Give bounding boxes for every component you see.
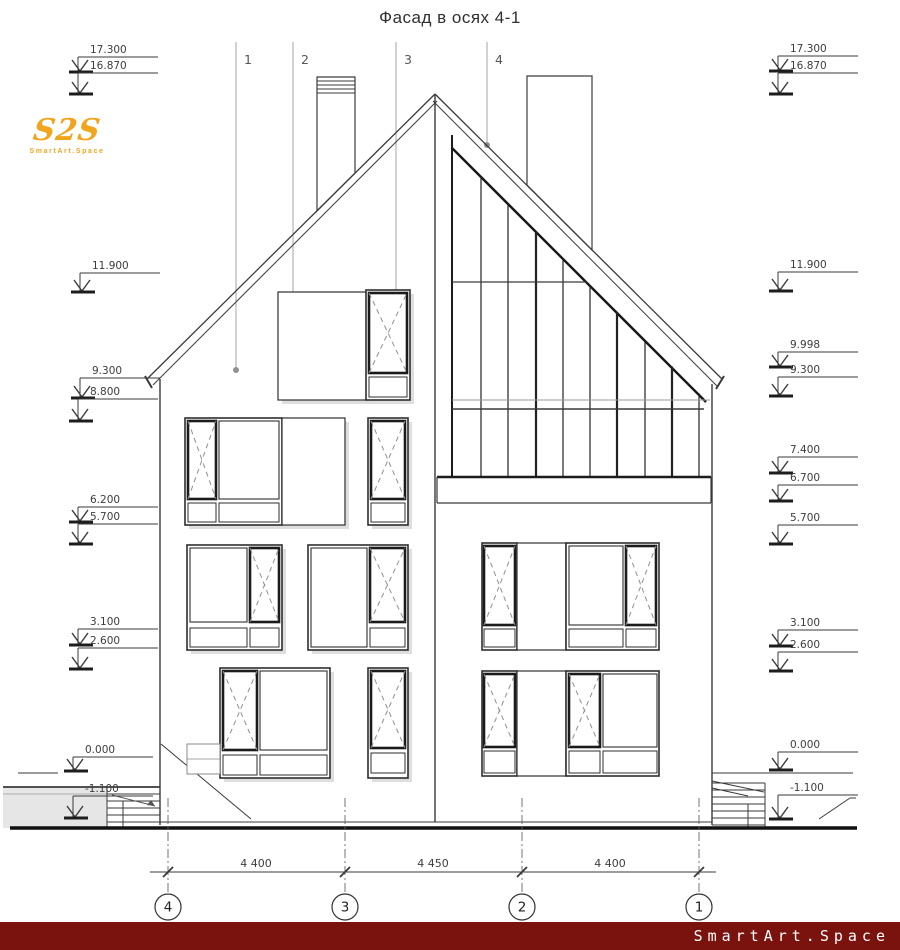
line: [780, 489, 788, 500]
line: [80, 532, 88, 543]
line: [80, 82, 88, 93]
line: [72, 409, 80, 420]
line: [75, 759, 83, 770]
level-value: 5.700: [790, 512, 820, 524]
axis-circles: 4321: [155, 894, 712, 920]
line: [72, 510, 80, 521]
spandrel-panel: [369, 377, 407, 397]
line: [80, 657, 88, 668]
level-value: 6.200: [90, 494, 120, 506]
facade-windows: [185, 290, 659, 782]
level-value: -1.100: [85, 783, 119, 795]
line: [72, 532, 80, 543]
footer-bar: SmartArt.Space: [0, 922, 900, 950]
line: [772, 82, 780, 93]
level-value: 9.300: [790, 364, 820, 376]
spandrel-panel: [260, 755, 327, 775]
attic-panel: [278, 292, 372, 404]
floor2-blank-panel: [282, 418, 349, 529]
line: [72, 82, 80, 93]
chimney-large: [527, 76, 592, 250]
floor2-window-1: [185, 418, 286, 529]
fixed-pane: [190, 548, 247, 622]
dimension-value: 4 450: [417, 857, 449, 870]
right-gf-window-2: [566, 671, 659, 776]
line: [780, 59, 788, 70]
chimneys: [317, 76, 592, 250]
level-value: 0.000: [85, 744, 115, 756]
line: [772, 461, 780, 472]
line: [80, 510, 88, 521]
level-value: 11.900: [790, 259, 827, 271]
leader-dot: [233, 367, 239, 373]
fixed-pane: [569, 546, 623, 625]
fixed-pane: [603, 674, 657, 747]
level-value: 9.998: [790, 339, 820, 351]
level-value: 3.100: [790, 617, 820, 629]
line: [780, 461, 788, 472]
line: [74, 386, 82, 397]
axis-number: 2: [518, 900, 527, 916]
level-value: 2.600: [90, 635, 120, 647]
spandrel-panel: [371, 503, 405, 522]
attic-window: [366, 290, 414, 404]
dimension-line: 4 4004 4504 400: [150, 798, 716, 893]
level-value: 5.700: [90, 511, 120, 523]
line: [780, 279, 788, 290]
spandrel-panel: [569, 629, 623, 647]
leader-label: 2: [301, 52, 309, 67]
leader-label: 1: [244, 52, 252, 67]
level-value: 17.300: [90, 44, 127, 56]
level-value: 16.870: [90, 60, 127, 72]
fixed-pane: [260, 671, 327, 750]
line: [72, 60, 80, 71]
line: [80, 633, 88, 644]
level-value: 0.000: [790, 739, 820, 751]
spandrel-panel: [484, 751, 515, 773]
window-frame: [517, 543, 566, 650]
leader-label: 3: [404, 52, 412, 67]
line: [780, 532, 788, 543]
floor1-window-2: [308, 545, 412, 654]
line: [780, 384, 788, 395]
facade-elevation-drawing: 123417.30016.87011.9009.3008.8006.2005.7…: [0, 0, 900, 950]
spandrel-panel: [188, 503, 216, 522]
spandrel-panel: [371, 753, 405, 773]
dimension-value: 4 400: [594, 857, 626, 870]
dimension-value: 4 400: [240, 857, 272, 870]
level-value: 8.800: [90, 386, 120, 398]
line: [780, 82, 788, 93]
line: [82, 280, 90, 291]
spandrel-panel: [484, 629, 515, 647]
levels-left: 17.30016.87011.9009.3008.8006.2005.7003.…: [64, 44, 160, 818]
axis-number: 3: [341, 900, 350, 916]
line: [772, 384, 780, 395]
right-f1-window-1: [482, 543, 517, 650]
line: [80, 409, 88, 420]
spandrel-panel: [190, 628, 247, 647]
line: [80, 60, 88, 71]
level-value: 16.870: [790, 60, 827, 72]
levels-right: 17.30016.87011.9009.9989.3007.4006.7005.…: [769, 43, 858, 819]
floor1-window-1: [187, 545, 286, 654]
spandrel-panel: [250, 628, 279, 647]
level-value: 3.100: [90, 616, 120, 628]
line: [74, 280, 82, 291]
line: [772, 279, 780, 290]
window-frame: [517, 671, 566, 776]
line: [772, 659, 780, 670]
line: [772, 758, 780, 769]
level-value: 11.900: [92, 260, 129, 272]
right-f1-blank: [517, 543, 566, 650]
right-gf-window-1: [482, 671, 517, 776]
line: [772, 489, 780, 500]
line: [772, 532, 780, 543]
chimney-small: [317, 77, 355, 211]
spandrel-panel: [370, 628, 405, 647]
floor2-window-2: [368, 418, 412, 529]
line: [780, 807, 788, 818]
line: [72, 657, 80, 668]
fixed-pane: [219, 421, 279, 499]
line: [772, 355, 780, 366]
spandrel-panel: [603, 751, 657, 773]
footer-brand: SmartArt.Space: [694, 927, 900, 945]
line: [72, 633, 80, 644]
line: [716, 376, 724, 389]
terrain-break: [819, 798, 850, 819]
right-gf-blank: [517, 671, 566, 776]
level-value: 7.400: [790, 444, 820, 456]
line: [780, 659, 788, 670]
window-frame: [278, 292, 368, 400]
right-f1-window-2: [566, 543, 659, 650]
level-value: 9.300: [92, 365, 122, 377]
level-value: 6.700: [790, 472, 820, 484]
line: [780, 355, 788, 366]
line: [67, 759, 75, 770]
level-value: 2.600: [790, 639, 820, 651]
spandrel-panel: [569, 751, 600, 773]
ground-window-2: [368, 668, 412, 782]
line: [772, 59, 780, 70]
line: [780, 634, 788, 645]
window-frame: [282, 418, 345, 525]
level-value: -1.100: [790, 782, 824, 794]
axis-number: 4: [164, 900, 173, 916]
level-value: 17.300: [790, 43, 827, 55]
leader-label: 4: [495, 52, 503, 67]
ground-window-1: [220, 668, 334, 782]
spandrel-panel: [223, 755, 257, 775]
line: [772, 634, 780, 645]
line: [772, 807, 780, 818]
line: [712, 788, 748, 796]
line: [82, 386, 90, 397]
spandrel-panel: [219, 503, 279, 522]
drawing-page: Фасад в осях 4-1 S2S SmartArt.Space 1234…: [0, 0, 900, 950]
spandrel-panel: [626, 629, 656, 647]
line: [780, 758, 788, 769]
axis-number: 1: [695, 900, 704, 916]
fixed-pane: [311, 548, 367, 647]
